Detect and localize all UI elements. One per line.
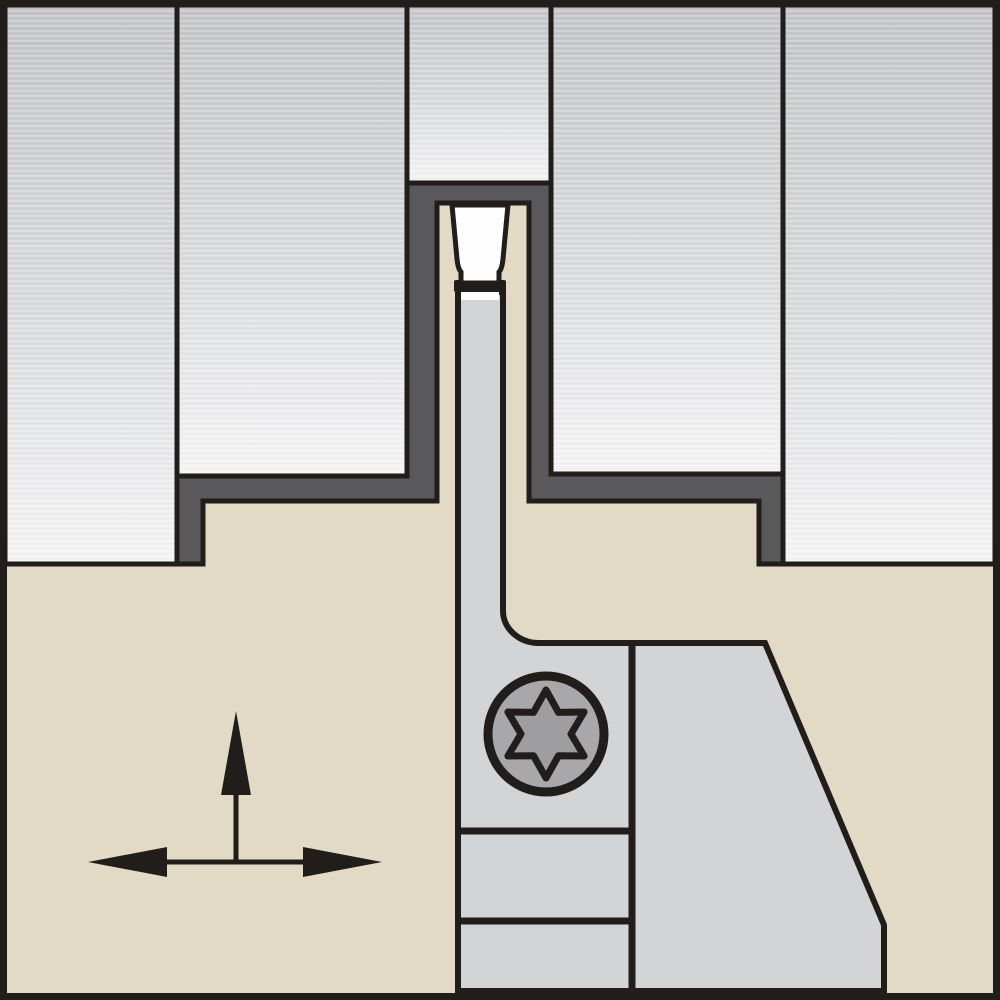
diagram-canvas <box>0 0 1000 1000</box>
grooving-tool-diagram <box>0 0 1000 1000</box>
workpiece-center-stub <box>407 5 551 183</box>
workpiece-left-outer <box>5 5 177 564</box>
grooving-insert <box>452 205 508 283</box>
clamp-screw <box>488 676 604 792</box>
insert-clearance-band <box>461 291 499 300</box>
workpiece-right-inner <box>551 5 783 474</box>
workpiece-right-outer <box>783 5 995 564</box>
workpiece-left-inner <box>177 5 407 476</box>
